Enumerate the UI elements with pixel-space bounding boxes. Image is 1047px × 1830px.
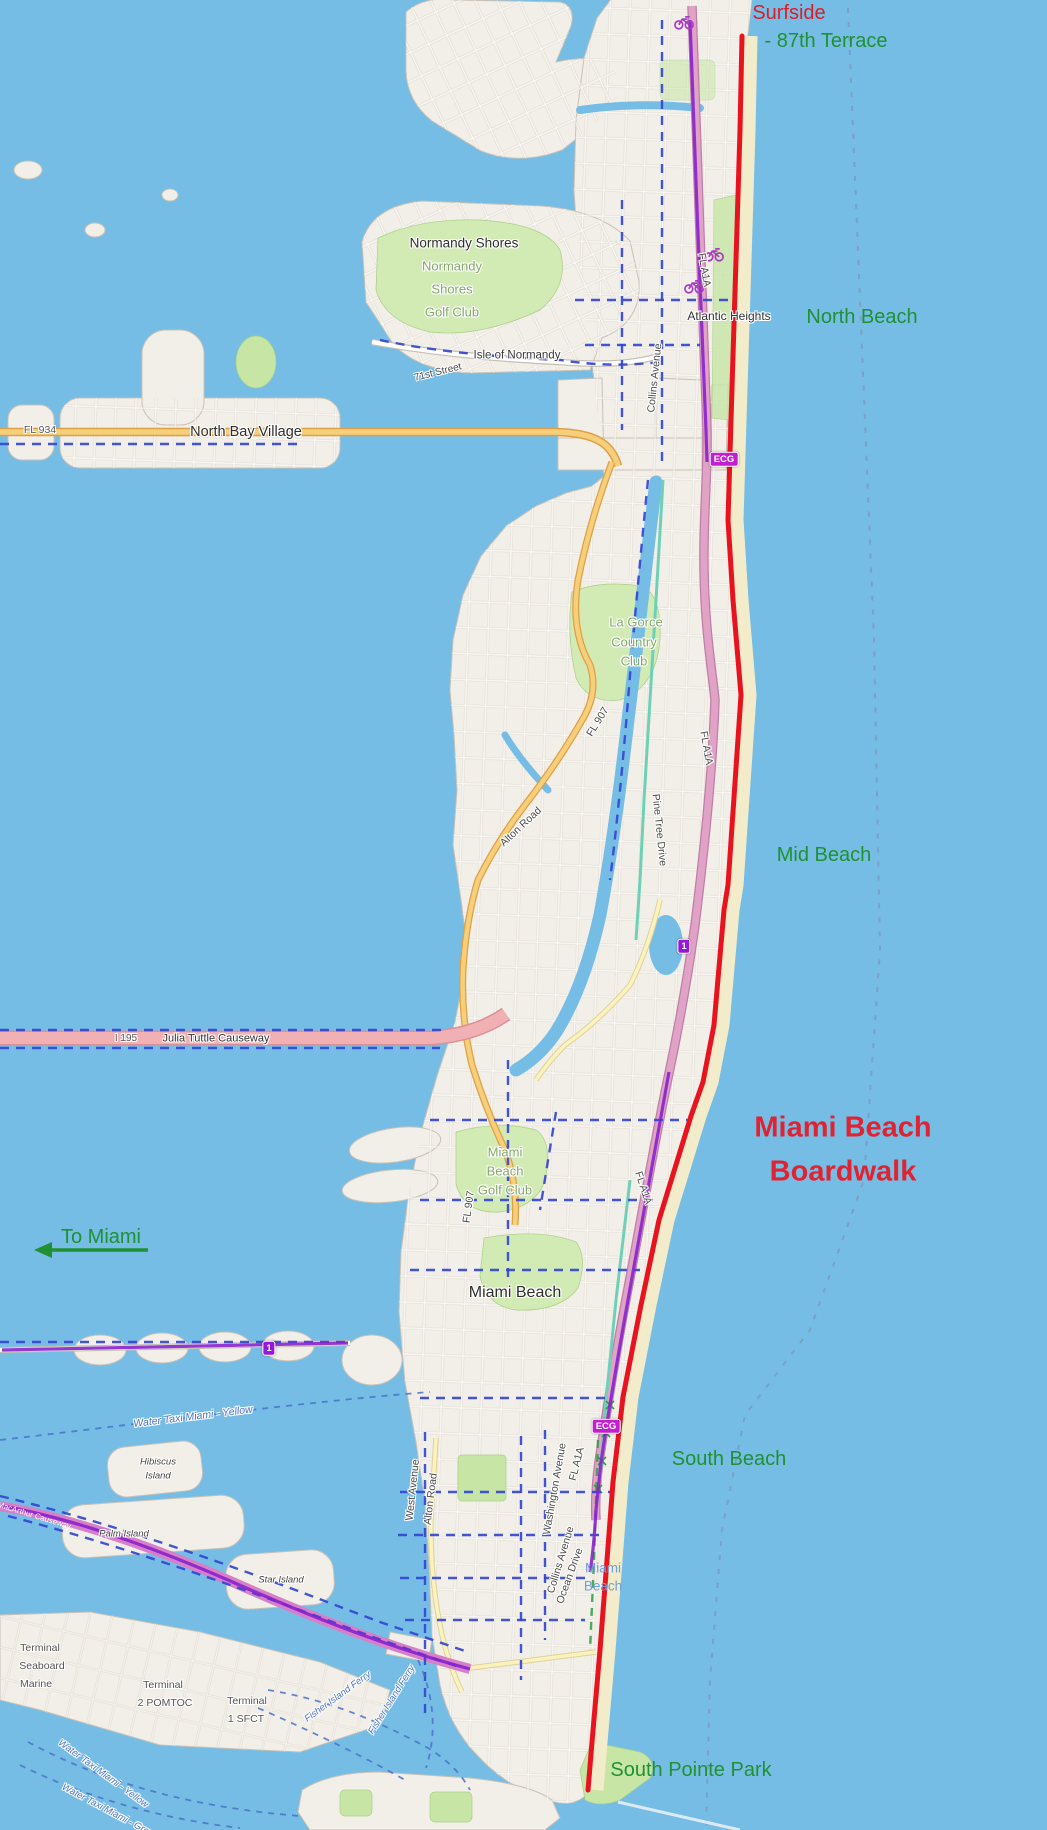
map-viewport[interactable]: Surfside- 87th TerraceNorth BeachMid Bea… bbox=[0, 0, 1047, 1830]
map-graphics bbox=[0, 0, 1047, 1830]
